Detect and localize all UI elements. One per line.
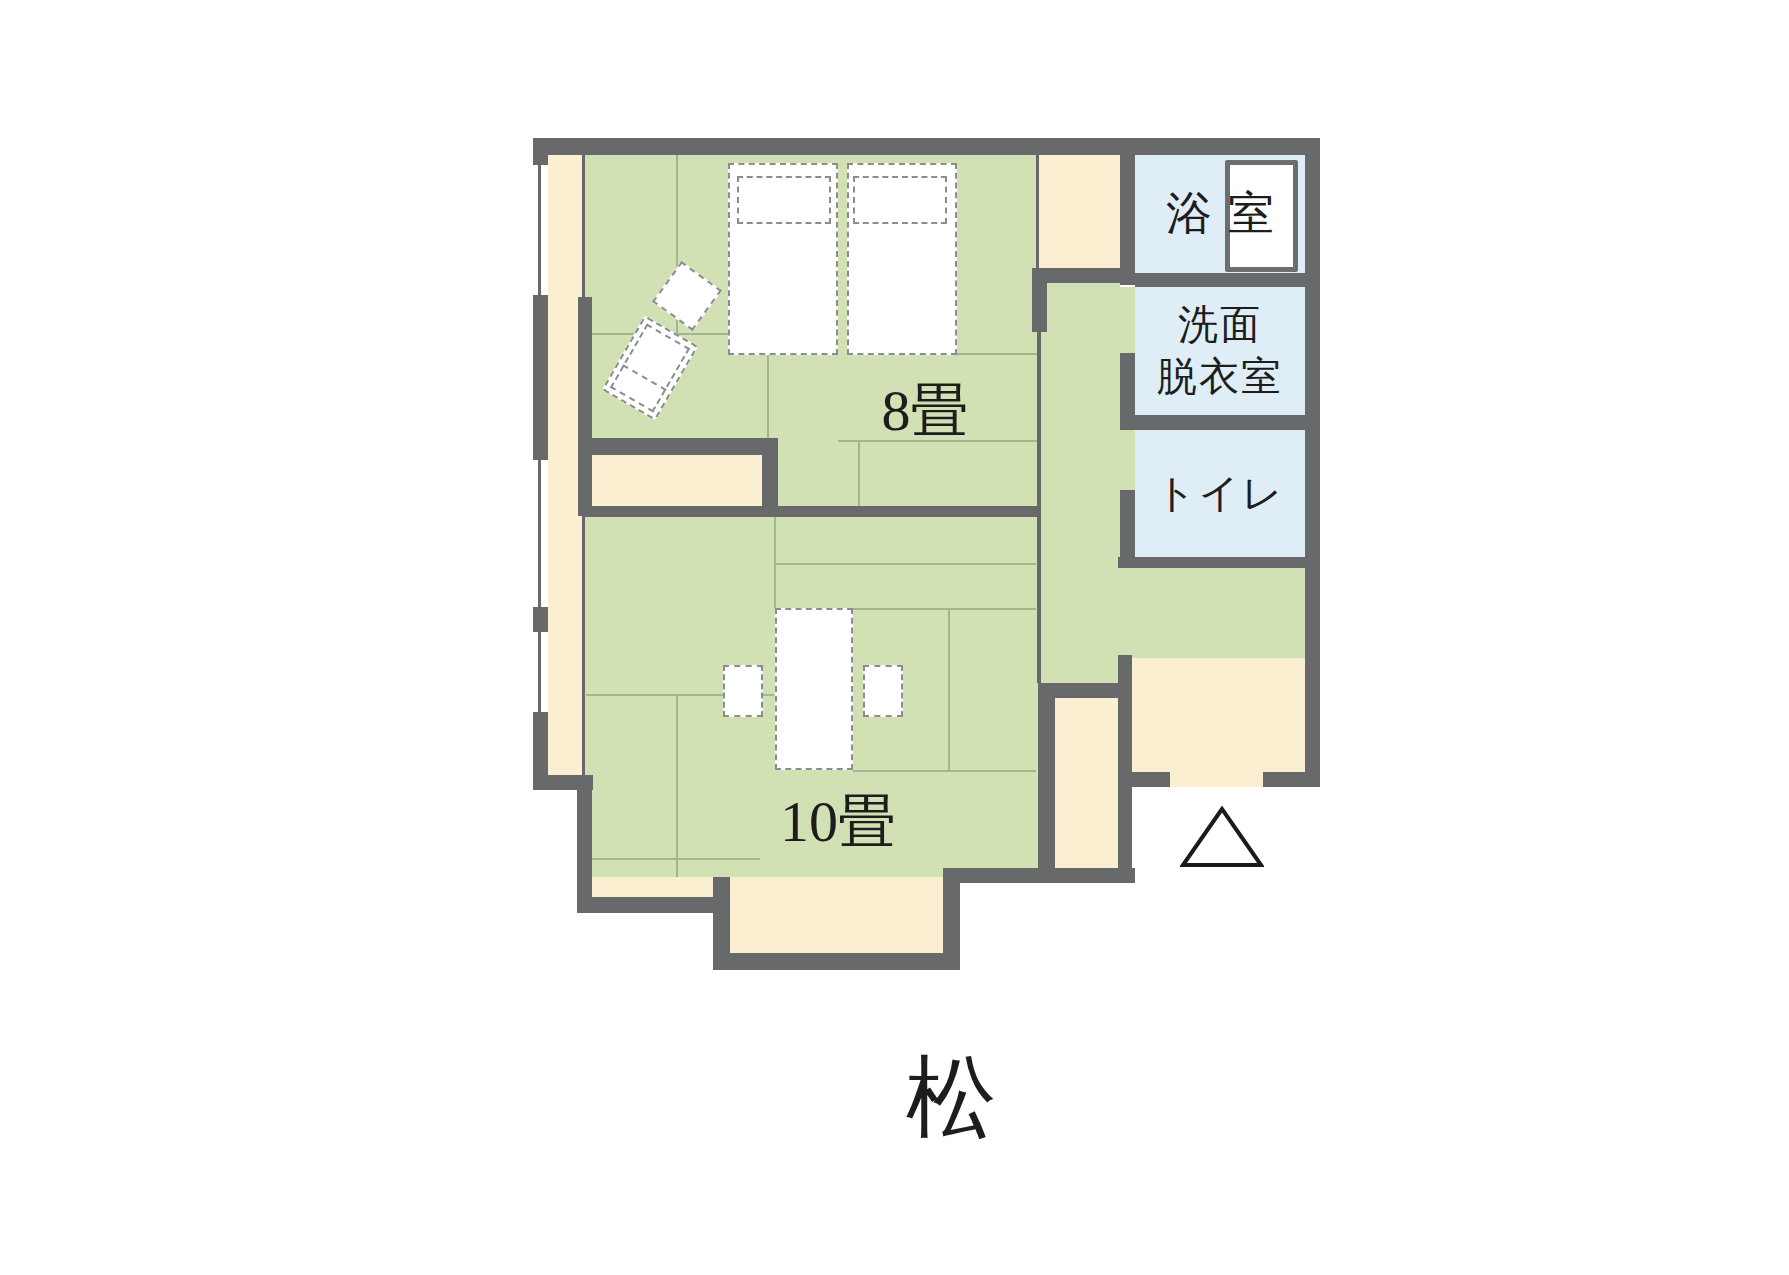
washroom-label-line2: 脱衣室 bbox=[1157, 351, 1283, 403]
wall-left-segment bbox=[533, 607, 548, 632]
hallway-strip bbox=[1038, 283, 1120, 683]
tatami-line bbox=[592, 858, 760, 860]
tatami-line bbox=[774, 563, 1036, 565]
entrance-step-strip bbox=[1055, 698, 1118, 868]
closet-top-right bbox=[1039, 155, 1120, 268]
wall-bottom-right bbox=[943, 868, 1135, 883]
toilet-label: トイレ bbox=[1135, 430, 1305, 557]
low-table bbox=[775, 608, 853, 770]
wall-left-segment bbox=[533, 712, 548, 780]
wall-segment bbox=[1120, 140, 1135, 285]
bath-label: 浴室 bbox=[1135, 155, 1305, 273]
entrance-genkan bbox=[1132, 658, 1305, 787]
hallway-door-gap-washroom bbox=[1120, 287, 1135, 353]
room-8jo-label-text: 8畳 bbox=[882, 372, 969, 450]
wall-top bbox=[533, 138, 1320, 155]
window-line bbox=[538, 460, 541, 607]
washroom-label-line1: 洗面 bbox=[1178, 299, 1262, 351]
tatami-line bbox=[774, 517, 776, 608]
hallway-horizontal bbox=[1118, 568, 1305, 658]
shoji-line bbox=[582, 155, 585, 297]
wall-closet-right bbox=[762, 438, 778, 516]
plan-title: 松 bbox=[851, 1050, 1051, 1145]
hallway-door-gap-toilet bbox=[1120, 430, 1135, 490]
floor-plan-matsu: 浴室 洗面 脱衣室 トイレ 8畳 10畳 松 bbox=[0, 0, 1789, 1275]
tatami-line bbox=[853, 770, 1036, 772]
room-10jo-label-text: 10畳 bbox=[780, 783, 896, 861]
tatami-line bbox=[957, 353, 1038, 355]
closet-between-rooms bbox=[592, 455, 762, 506]
bottom-alcove-strip bbox=[592, 877, 713, 897]
wall-entrance-bottom bbox=[1263, 772, 1320, 787]
wall-entrance-bottom bbox=[1118, 772, 1170, 787]
closet-line bbox=[1036, 155, 1039, 268]
wall-room-divider bbox=[584, 506, 1037, 517]
wall-left-segment bbox=[533, 295, 548, 460]
wall-engawa-inner bbox=[578, 297, 592, 516]
table-chair-left bbox=[723, 665, 763, 717]
wall-right-outer bbox=[1305, 138, 1320, 787]
pillow-left bbox=[737, 176, 831, 224]
wall-segment bbox=[577, 790, 592, 913]
sliding-door-line bbox=[1037, 332, 1041, 683]
wall-toilet-bottom bbox=[1118, 557, 1305, 568]
wall-segment bbox=[577, 897, 730, 913]
tatami-line bbox=[676, 694, 678, 877]
wall-bath-washroom bbox=[1135, 273, 1305, 287]
tatami-line bbox=[948, 608, 950, 770]
window-line bbox=[538, 165, 541, 295]
tatami-line bbox=[853, 608, 1036, 610]
tatami-line bbox=[858, 440, 860, 506]
wall-closet-top bbox=[578, 438, 778, 455]
wall-porch-right bbox=[943, 868, 960, 970]
wall-door-jamb bbox=[1032, 268, 1047, 332]
wall-left-segment bbox=[533, 138, 548, 165]
bottom-porch bbox=[730, 877, 943, 953]
wall-segment bbox=[533, 775, 593, 790]
wall-entrance-left bbox=[1118, 655, 1132, 883]
plan-title-text: 松 bbox=[906, 1037, 996, 1159]
washroom-label: 洗面 脱衣室 bbox=[1135, 287, 1305, 415]
wall-washroom-toilet bbox=[1120, 415, 1305, 430]
wall-step-left bbox=[1038, 698, 1055, 868]
table-chair-right bbox=[863, 665, 903, 717]
wall-porch-bottom bbox=[713, 953, 960, 970]
room-10jo-label: 10畳 bbox=[738, 792, 938, 852]
room-8jo-label: 8畳 bbox=[830, 380, 1020, 442]
window-line bbox=[538, 632, 541, 712]
toilet-label-text: トイレ bbox=[1156, 468, 1285, 520]
wall-step-top bbox=[1038, 683, 1118, 698]
entrance-triangle-icon bbox=[1180, 806, 1264, 868]
pillow-right bbox=[853, 176, 947, 224]
shoji-line bbox=[582, 516, 585, 775]
bath-label-text: 浴室 bbox=[1150, 183, 1290, 245]
